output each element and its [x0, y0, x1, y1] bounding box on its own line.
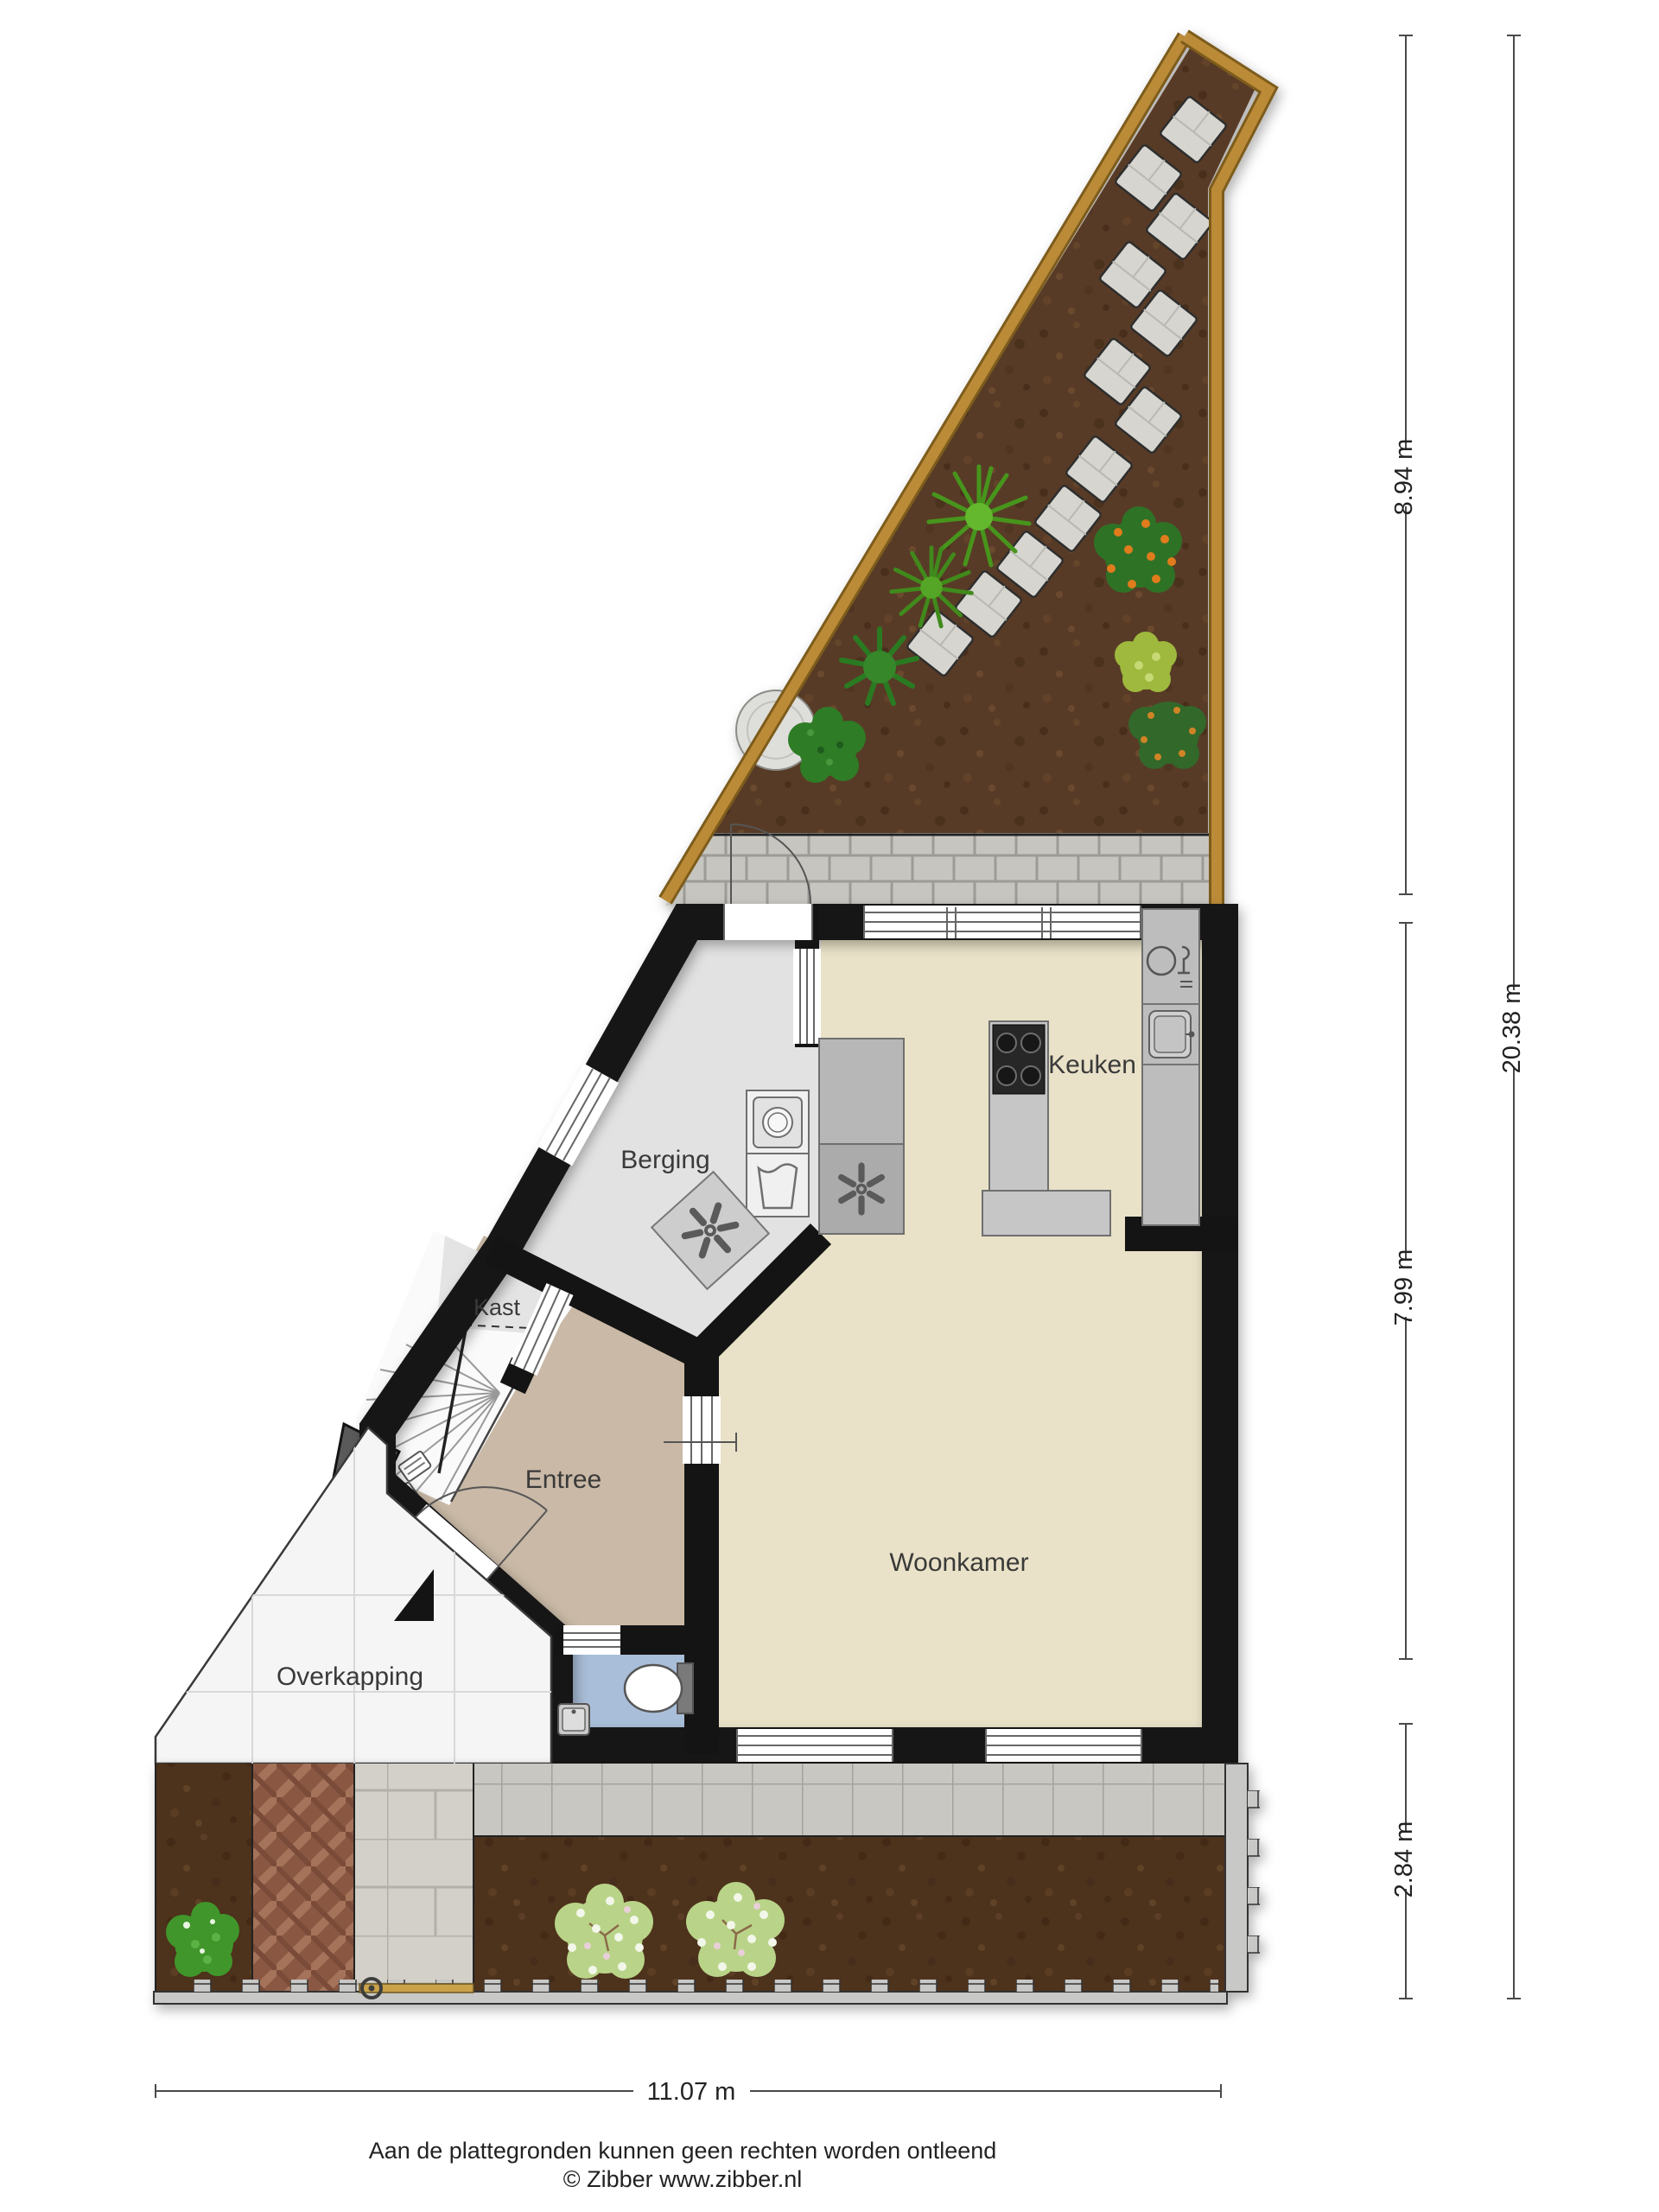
garden-bottom — [154, 1764, 1260, 2004]
washing-machine-icon — [747, 1090, 809, 1217]
dim-plot-width: 11.07 m — [647, 2078, 736, 2106]
garden-border-bottom — [154, 1992, 1227, 2004]
footer-copyright: © Zibber www.zibber.nl — [563, 2166, 803, 2192]
door-berging-keuken — [793, 949, 821, 1044]
room-label-berging: Berging — [620, 1146, 709, 1174]
garden-wall-right — [1225, 1764, 1248, 1992]
footer-disclaimer: Aan de plattegronden kunnen geen rechten… — [369, 2138, 997, 2164]
room-label-keuken: Keuken — [1048, 1051, 1136, 1079]
floorplan-canvas: Berging Keuken Kast Entree Woonkamer Ove… — [0, 0, 1659, 2212]
sink-icon — [1149, 1011, 1195, 1058]
cooktop-icon — [993, 1025, 1045, 1094]
dim-garden-bottom: 2.84 m — [1390, 1821, 1418, 1898]
door-toilet — [563, 1625, 620, 1655]
room-label-entree: Entree — [525, 1465, 601, 1494]
window-keuken — [864, 906, 1141, 938]
tall-cabinets — [819, 1039, 904, 1234]
dim-total-height: 20.38 m — [1498, 983, 1526, 1074]
brick-path — [252, 1764, 354, 1992]
door-entree-woonkamer — [683, 1396, 721, 1464]
window-woonkamer-right — [986, 1729, 1141, 1762]
dim-garden-top: 8.94 m — [1390, 439, 1418, 516]
floorplan-page: Berging Keuken Kast Entree Woonkamer Ove… — [0, 0, 1659, 2212]
toilet-icon — [625, 1665, 682, 1712]
kitchen-counter — [1142, 909, 1199, 1225]
window-woonkamer-left — [737, 1729, 893, 1762]
hand-basin-icon — [558, 1704, 589, 1735]
speckled-bush-icon — [1128, 702, 1206, 769]
walkway — [354, 1764, 474, 1992]
room-label-overkapping: Overkapping — [276, 1662, 423, 1691]
room-label-woonkamer: Woonkamer — [889, 1548, 1028, 1577]
garden-top — [665, 36, 1268, 906]
room-label-kast: Kast — [474, 1294, 521, 1320]
dim-house: 7.99 m — [1390, 1249, 1418, 1326]
paver-band — [665, 833, 1218, 906]
terrace — [474, 1764, 1225, 1836]
footer: Aan de plattegronden kunnen geen rechten… — [369, 2138, 997, 2192]
